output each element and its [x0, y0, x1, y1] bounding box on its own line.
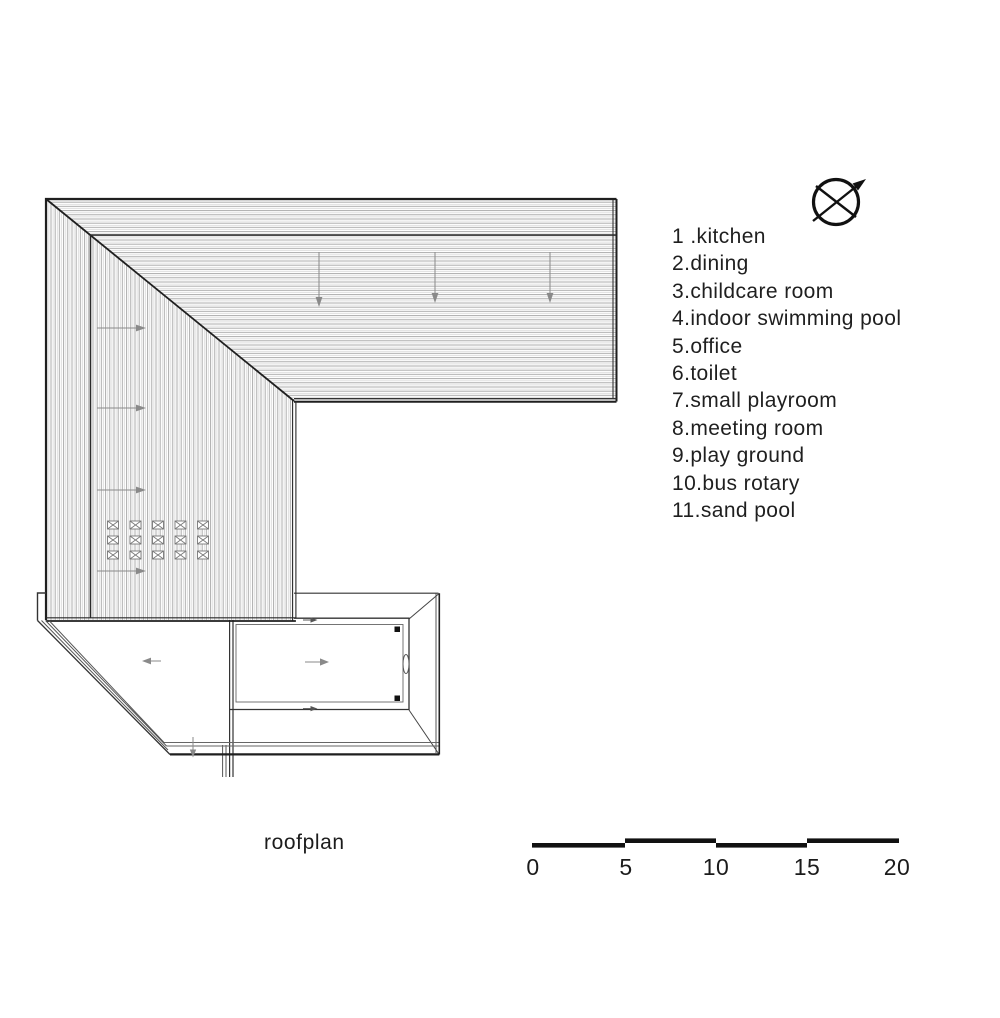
- legend-item: 4.indoor swimming pool: [672, 305, 901, 332]
- north-arrow-icon: [813, 179, 866, 225]
- scale-bar-labels: 0 5 10 15 20: [0, 854, 1000, 880]
- legend-item: 1 .kitchen: [672, 223, 901, 250]
- scale-label: 10: [703, 854, 730, 881]
- page: 1 .kitchen 2.dining 3.childcare room 4.i…: [0, 0, 1000, 1018]
- legend-item: 10.bus rotary: [672, 470, 901, 497]
- legend-item: 7.small playroom: [672, 387, 901, 414]
- scale-label: 20: [884, 854, 911, 881]
- legend-item: 6.toilet: [672, 360, 901, 387]
- legend-item: 9.play ground: [672, 442, 901, 469]
- scale-label: 15: [794, 854, 821, 881]
- scale-label: 5: [619, 854, 632, 881]
- scale-label: 0: [526, 854, 539, 881]
- scale-bar: [532, 838, 899, 847]
- legend-item: 8.meeting room: [672, 415, 901, 442]
- legend: 1 .kitchen 2.dining 3.childcare room 4.i…: [672, 223, 901, 524]
- legend-item: 3.childcare room: [672, 278, 901, 305]
- drawing-title: roofplan: [264, 831, 345, 855]
- legend-item: 2.dining: [672, 250, 901, 277]
- legend-item: 5.office: [672, 333, 901, 360]
- legend-item: 11.sand pool: [672, 497, 901, 524]
